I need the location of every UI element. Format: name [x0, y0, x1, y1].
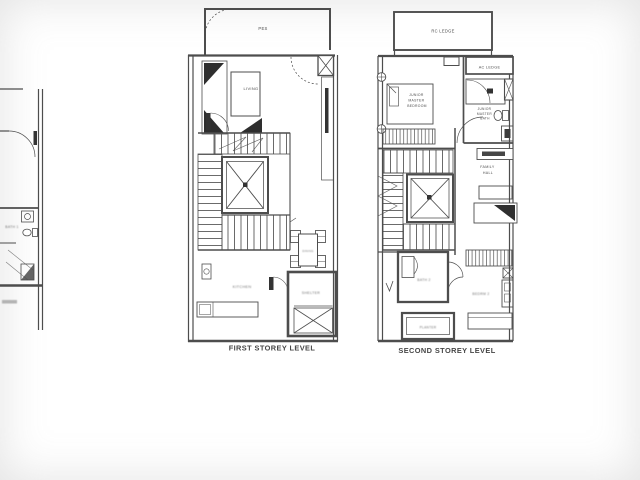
washbasin-icon — [22, 211, 34, 222]
door-arc — [205, 9, 232, 36]
entry-door-arc — [291, 57, 318, 84]
wardrobe — [466, 250, 512, 266]
label-rc-ledge: RC LEDGE — [431, 29, 454, 34]
label-line: BEDROOM — [407, 104, 427, 108]
stair-flight-lower — [222, 215, 290, 250]
room-label-dining: DINING — [302, 249, 313, 253]
planter-box: PLANTER — [402, 313, 454, 339]
door-arc — [269, 277, 288, 291]
bedroom2-room: BEDRM 2 — [466, 250, 513, 329]
bed — [468, 313, 512, 329]
stair-flight-left — [383, 173, 403, 250]
floor-plan-sheet: BATH 1 PES — [0, 0, 640, 480]
room-label-living: LIVING — [244, 86, 259, 91]
shaft-mark — [386, 281, 393, 291]
label-line: FAMILY — [480, 165, 495, 169]
console-shelf — [477, 149, 513, 160]
stair-core — [198, 133, 296, 250]
toilet-icon — [494, 111, 509, 121]
counter — [197, 302, 258, 317]
wardrobe — [383, 129, 435, 144]
shower-area — [6, 250, 34, 280]
dining-set: DINING — [291, 231, 326, 268]
label-line: MASTER — [408, 99, 424, 103]
plan-first-storey: PES — [188, 9, 338, 353]
stair-flight-left — [198, 154, 222, 250]
toilet-icon — [23, 229, 38, 237]
label-ac-ledge: AC LEDGE — [479, 66, 501, 70]
stair-flight-lower — [403, 224, 455, 250]
column-icon — [318, 56, 334, 76]
label-line: JUNIOR — [409, 93, 424, 97]
tv-console — [479, 186, 512, 199]
floor-plan-drawing: BATH 1 PES — [0, 0, 640, 480]
room-label-junior-master-bath: JUNIOR MASTER BATH — [477, 107, 493, 121]
label-planter: PLANTER — [420, 326, 437, 330]
room-label-family-hall: FAMILY HALL — [480, 165, 496, 175]
label-line: JUNIOR — [478, 107, 492, 111]
rc-ledge: RC LEDGE — [394, 12, 492, 56]
column-icon — [503, 268, 513, 278]
label-line: MASTER — [477, 112, 492, 116]
shower — [402, 257, 414, 278]
living-room: LIVING — [202, 61, 262, 134]
wall-notch — [444, 57, 459, 66]
room-label-junior-master-bedroom: JUNIOR MASTER BEDROOM — [407, 93, 427, 108]
ac-ledge: AC LEDGE — [466, 57, 513, 74]
caption-second-storey: SECOND STOREY LEVEL — [398, 346, 495, 355]
kitchen-room: KITCHEN — [197, 264, 288, 317]
bath2-room: BATH 2 — [378, 252, 463, 302]
stair-flight-upper — [214, 133, 290, 154]
plan-adjacent-partial: BATH 1 — [0, 89, 43, 330]
lift-shaft — [222, 157, 268, 213]
stair-core — [378, 128, 455, 255]
sofa — [474, 203, 517, 223]
plan-second-storey: RC LEDGE AC LEDGE — [377, 12, 517, 355]
door-arc — [448, 262, 463, 277]
door-arc — [9, 131, 37, 157]
cabinet — [502, 280, 513, 307]
shower — [466, 79, 505, 104]
walls — [0, 89, 43, 330]
side-shaft — [322, 77, 334, 180]
label-line: HALL — [483, 171, 493, 175]
pes-terrace: PES — [205, 9, 330, 55]
junior-master-bedroom: JUNIOR MASTER BEDROOM — [377, 57, 459, 149]
washbasin-icon — [202, 264, 211, 279]
stair-flight-upper — [383, 150, 453, 173]
room-label-bath2: BATH 2 — [417, 278, 430, 282]
coffee-table — [231, 72, 260, 116]
room-label-shelter: SHELTER — [302, 291, 321, 295]
room-label-bedroom2: BEDRM 2 — [472, 292, 489, 296]
illegible-note-smudge — [2, 300, 17, 304]
room-label-pes: PES — [258, 26, 267, 31]
door-arc — [448, 277, 463, 292]
lift-shaft — [407, 175, 453, 223]
caption-first-storey: FIRST STOREY LEVEL — [229, 344, 316, 353]
washbasin-icon — [502, 126, 514, 141]
door-arc — [457, 117, 483, 143]
room-label-kitchen: KITCHEN — [233, 285, 252, 289]
room-label-bath1: BATH 1 — [5, 225, 18, 229]
shelter-room: SHELTER — [288, 272, 336, 336]
column-icon — [505, 79, 514, 100]
